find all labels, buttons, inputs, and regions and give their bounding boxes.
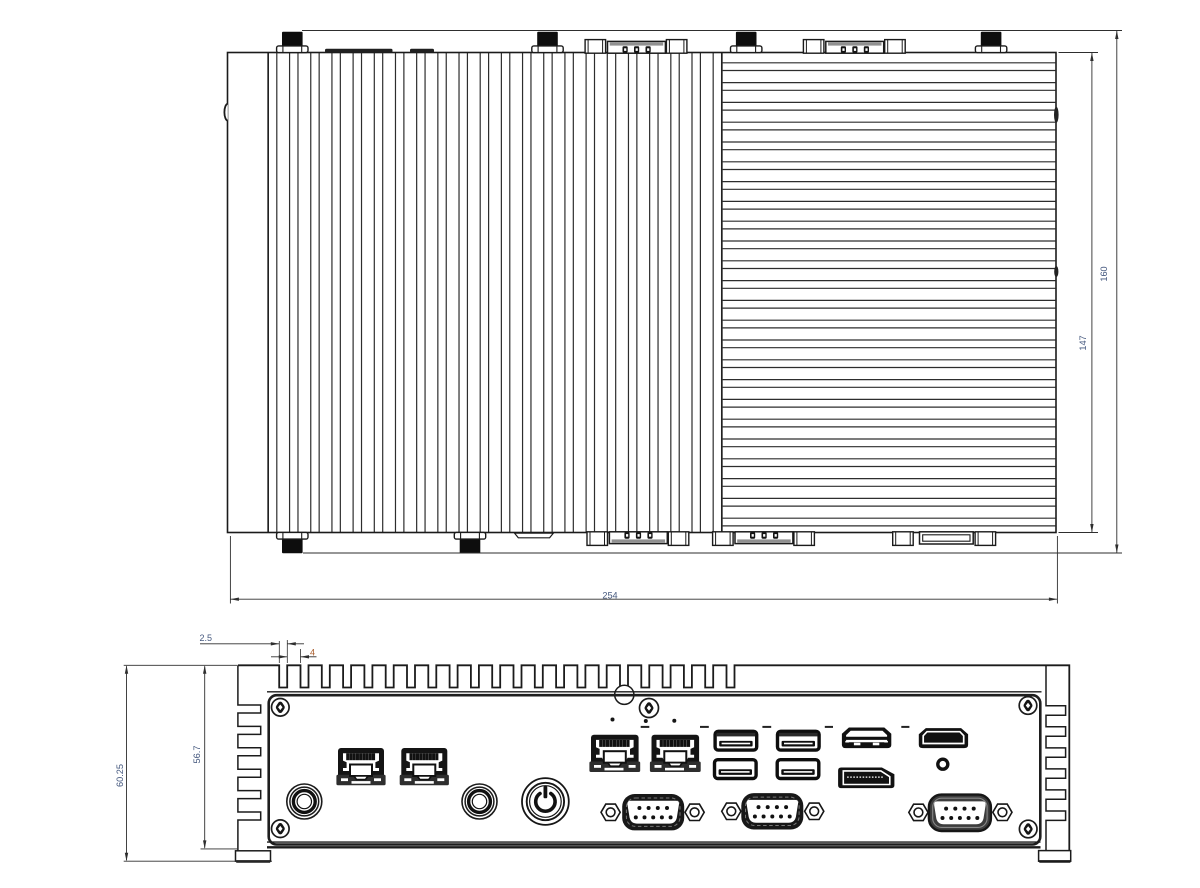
svg-text:4: 4 xyxy=(310,647,315,657)
svg-text:147: 147 xyxy=(1078,335,1088,350)
svg-text:2.5: 2.5 xyxy=(200,633,213,643)
svg-text:254: 254 xyxy=(602,590,617,600)
svg-text:160: 160 xyxy=(1099,266,1109,281)
svg-text:60.25: 60.25 xyxy=(115,764,125,787)
svg-text:56.7: 56.7 xyxy=(192,746,202,764)
